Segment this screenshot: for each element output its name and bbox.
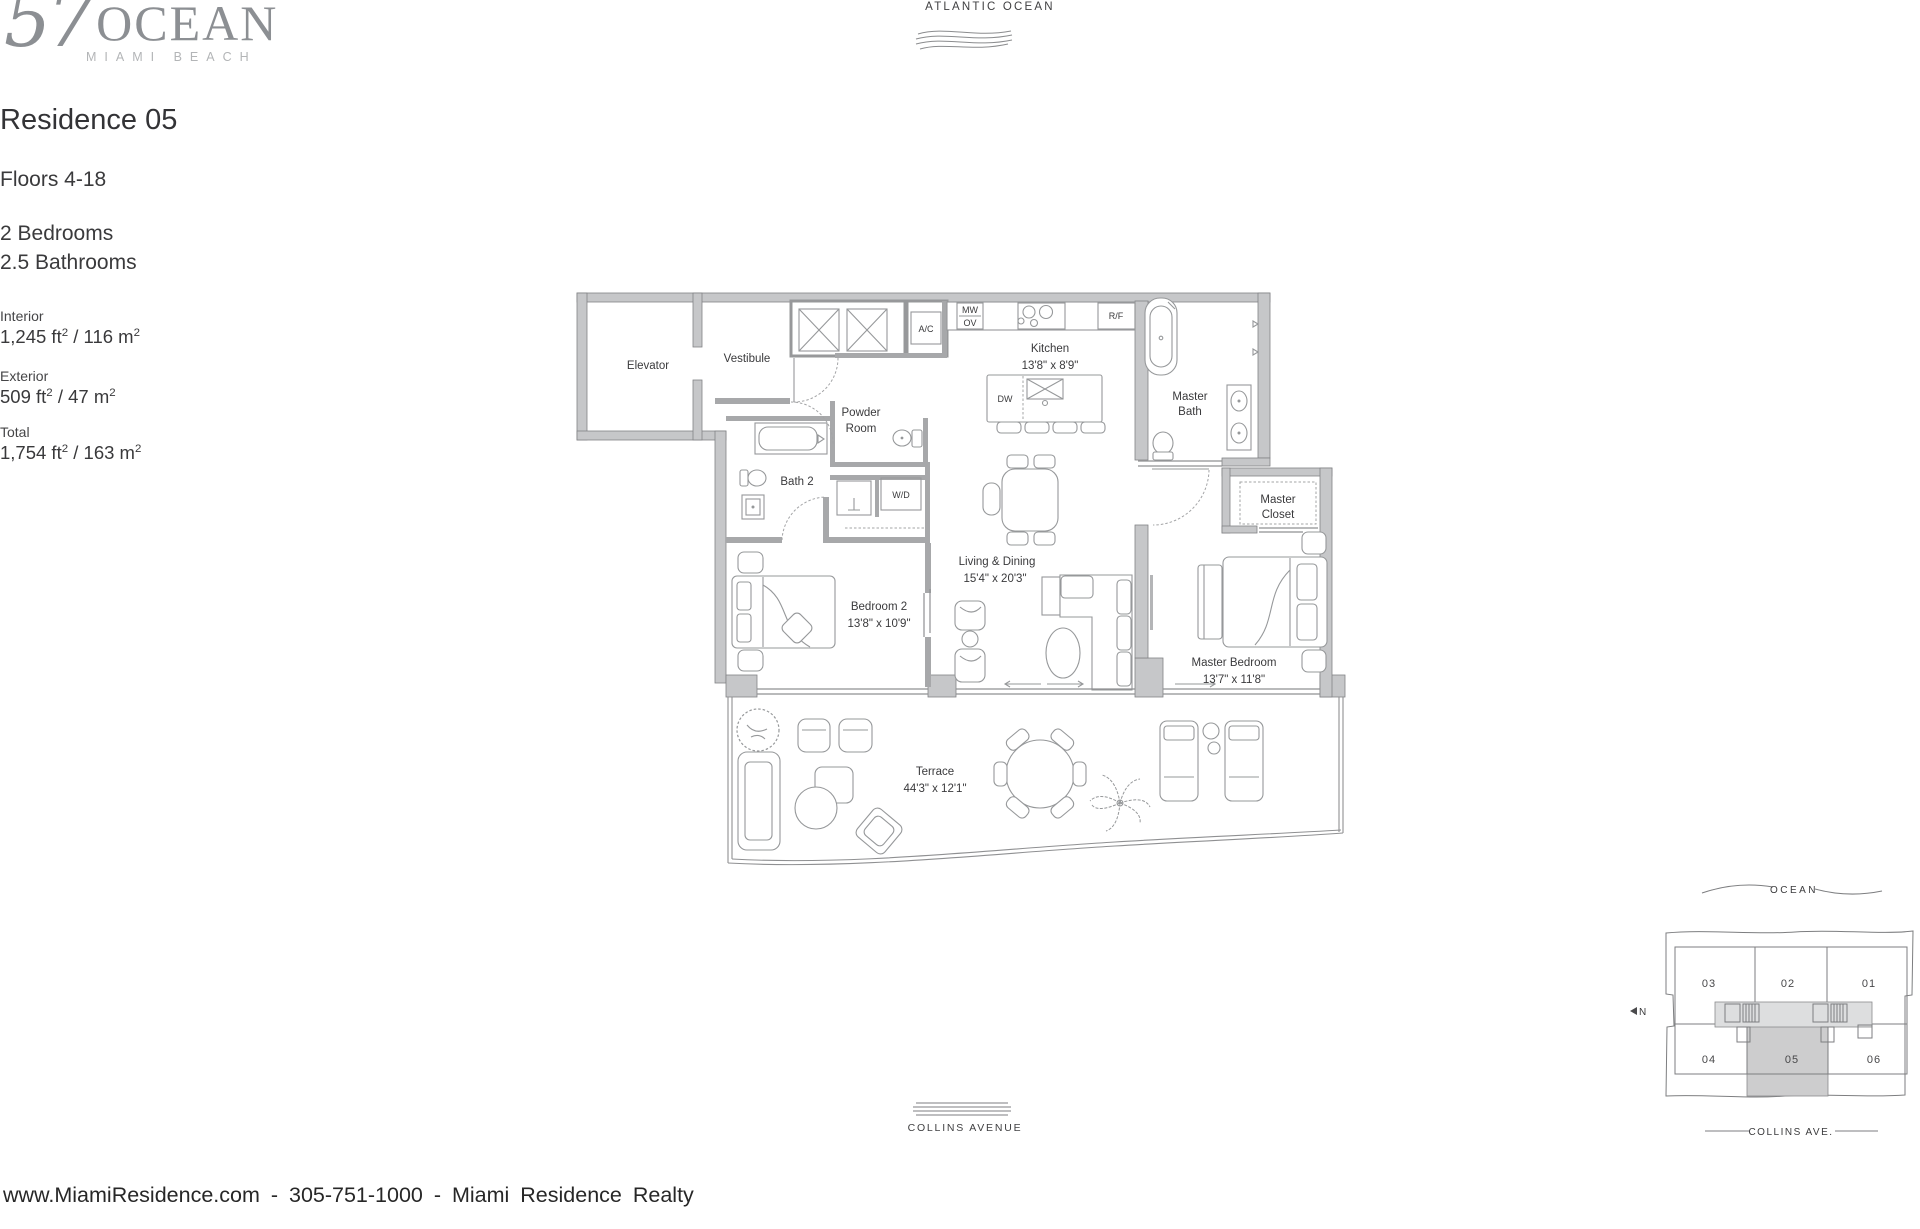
unit-04: 04 — [1702, 1054, 1716, 1066]
mw-label: MW — [962, 305, 978, 315]
atlantic-ocean-label: ATLANTIC OCEAN — [905, 1, 1075, 13]
logo-number: 57 — [4, 0, 90, 58]
ov-label: OV — [963, 318, 976, 328]
terrace-label: Terrace — [916, 766, 954, 778]
bedrooms-count: 2 Bedrooms — [0, 219, 137, 248]
interior-value: 1,245 ft2 / 116 m2 — [0, 326, 140, 348]
floors-range: Floors 4-18 — [0, 168, 106, 192]
room-labels: Elevator Vestibule A/C MW OV R/F DW Kitc… — [627, 305, 1296, 795]
bathrooms-count: 2.5 Bathrooms — [0, 248, 137, 277]
living-furniture — [955, 575, 1153, 690]
brand-logo: 57 OCEAN MIAMI BEACH — [4, 0, 278, 64]
elevator-shafts — [799, 309, 887, 351]
powder-label-1: Powder — [842, 407, 881, 419]
bedroom2-dims: 13'8" x 10'9" — [847, 618, 910, 630]
bedroom2-furniture — [732, 552, 835, 671]
north-arrow-icon: N — [1630, 1007, 1646, 1018]
terrace-dims: 44'3" x 12'1" — [903, 783, 966, 795]
terrace-furniture — [737, 709, 1263, 856]
unit-06: 06 — [1867, 1054, 1881, 1066]
bath2-label: Bath 2 — [780, 476, 813, 488]
floorplan-sheet: 57 OCEAN MIAMI BEACH ATLANTIC OCEAN Resi… — [0, 0, 1920, 1229]
master-closet-label-1: Master — [1260, 494, 1295, 506]
ac-label: A/C — [918, 324, 934, 334]
powder-label-2: Room — [846, 423, 877, 435]
interior-label: Interior — [0, 308, 44, 324]
unit-05: 05 — [1785, 1054, 1799, 1066]
road-lines-icon — [913, 1101, 1013, 1121]
master-bedroom-dims: 13'7" x 11'8" — [1203, 674, 1265, 686]
unit-02: 02 — [1781, 978, 1795, 990]
master-bedroom-furniture — [1198, 532, 1327, 672]
footer-contact: www.MiamiResidence.com - 305-751-1000 - … — [3, 1183, 694, 1208]
tv-panel — [1150, 575, 1153, 630]
page-title: Residence 05 — [0, 104, 177, 137]
keyplan: OCEAN 03 02 — [1625, 875, 1918, 1160]
vestibule-label: Vestibule — [724, 353, 771, 365]
palm-tree — [1090, 775, 1150, 831]
kitchen-island — [987, 375, 1105, 433]
bedroom2-label: Bedroom 2 — [851, 601, 907, 613]
living-dims: 15'4" x 20'3" — [963, 573, 1026, 585]
logo-subtitle: MIAMI BEACH — [86, 50, 278, 64]
elevator-label: Elevator — [627, 360, 669, 372]
logo-name: OCEAN — [96, 0, 278, 48]
keyplan-street-label: COLLINS AVE. — [1748, 1127, 1833, 1138]
master-closet-shelving — [1240, 482, 1318, 532]
floorplan-drawing: Elevator Vestibule A/C MW OV R/F DW Kitc… — [575, 285, 1355, 885]
bed-bath-summary: 2 Bedrooms 2.5 Bathrooms — [0, 219, 137, 277]
living-label: Living & Dining — [959, 556, 1036, 568]
master-bath-label-1: Master — [1172, 391, 1207, 403]
north-label: N — [1639, 1007, 1646, 1018]
total-value: 1,754 ft2 / 163 m2 — [0, 442, 141, 464]
exterior-label: Exterior — [0, 368, 48, 384]
powder-room-fixtures — [893, 430, 922, 447]
unit-01: 01 — [1862, 978, 1876, 990]
kitchen-label: Kitchen — [1031, 343, 1069, 355]
master-bedroom-label: Master Bedroom — [1191, 657, 1276, 669]
wd-label: W/D — [892, 490, 910, 500]
master-bath-fixtures — [1145, 298, 1258, 460]
ocean-waves-icon — [913, 25, 1017, 55]
master-bath-label-2: Bath — [1178, 406, 1202, 418]
total-label: Total — [0, 424, 30, 440]
rf-label: R/F — [1109, 311, 1124, 321]
collins-avenue-label: COLLINS AVENUE — [880, 1122, 1050, 1134]
dining-set — [983, 455, 1058, 545]
unit-03: 03 — [1702, 978, 1716, 990]
kitchen-dims: 13'8" x 8'9" — [1022, 360, 1079, 372]
keyplan-ocean-label: OCEAN — [1770, 885, 1818, 896]
keyplan-street: COLLINS AVE. — [1705, 1127, 1878, 1138]
exterior-value: 509 ft2 / 47 m2 — [0, 386, 116, 408]
dw-label: DW — [998, 394, 1013, 404]
master-closet-label-2: Closet — [1262, 509, 1295, 521]
